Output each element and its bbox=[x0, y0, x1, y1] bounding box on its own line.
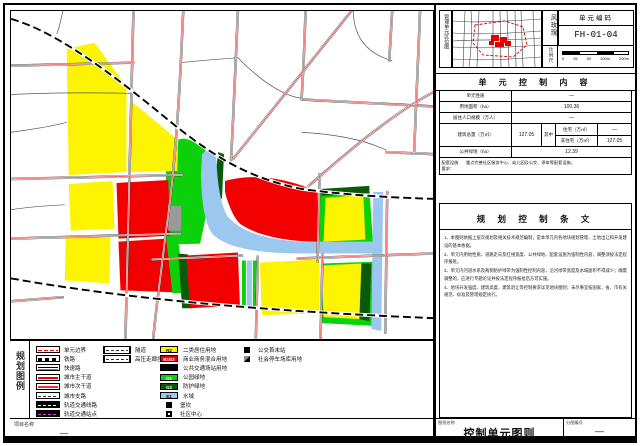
right-panel: 管理单元区位图 风玫瑰 bbox=[434, 5, 635, 442]
legend-item: 城市次干道 bbox=[36, 382, 97, 391]
plan-sheet: 规划图例 单元边界 铁路 快速路 城市主干道 城市次干道 城市支路 轨道交通线路… bbox=[3, 3, 637, 443]
location-inset-map bbox=[452, 10, 542, 68]
legend-item: G1公园绿地 bbox=[160, 373, 227, 382]
provision-item: 2、单元内用地性质、道路走向及红线宽度、公共绿地、配套设施为强制性内容，调整须按… bbox=[444, 251, 627, 266]
drawing-name-cell: 图纸名称 控制单元图则 bbox=[436, 419, 564, 442]
transit-station-swatch bbox=[160, 364, 178, 371]
project-name-strip: 项目名称 — bbox=[10, 418, 434, 442]
legend-item: 堡坎 bbox=[160, 400, 227, 409]
zoning-map bbox=[10, 10, 434, 340]
provisions-title: 规 划 控 制 条 文 bbox=[440, 204, 631, 230]
tunnel-symbol bbox=[103, 346, 131, 354]
bus-terminus-symbol bbox=[244, 347, 250, 353]
location-map-label: 管理单元区位图 bbox=[443, 14, 450, 49]
legend-panel: 规划图例 单元边界 铁路 快速路 城市主干道 城市次干道 城市支路 轨道交通线路… bbox=[10, 340, 434, 418]
drawing-title-strip: 图纸名称 控制单元图则 分图编号 — bbox=[436, 418, 635, 442]
table-row-total: 建筑总量（万㎡） 127.05 其中 住宅（万㎡） — 非住宅（万㎡） 127.… bbox=[440, 123, 631, 146]
sheet-number: — bbox=[564, 426, 635, 436]
location-map-label-strip: 管理单元区位图 bbox=[439, 10, 452, 68]
table-subrow: 住宅（万㎡） — bbox=[556, 124, 631, 135]
arterial-road-symbol bbox=[36, 374, 60, 381]
unit-boundary-symbol bbox=[36, 346, 60, 353]
table-row: 公共绿地（ha） 12.39 bbox=[440, 146, 631, 157]
scale-bar-graphic bbox=[562, 51, 629, 55]
table-row: 单元性质 — bbox=[440, 91, 631, 101]
park-green-swatch: G1 bbox=[160, 374, 178, 381]
legend-item: 城市支路 bbox=[36, 391, 97, 400]
table-remark-row: 配套设施 要求： 重点完善社区服务中心、幼儿园及公交、停车等配套设施。 bbox=[440, 157, 631, 174]
provision-item: 4、地块开发强度、建筑高度、建筑退让等控制要求详见地块图则；未尽事宜按国家、省、… bbox=[444, 284, 627, 299]
table-row: 用地面积（ha） 100.36 bbox=[440, 101, 631, 112]
legend-item: 轨道交通线路 bbox=[36, 400, 97, 409]
metro-line-symbol bbox=[36, 401, 60, 408]
legend-item: R2二类居住用地 bbox=[160, 345, 227, 354]
metro-station-symbol bbox=[36, 410, 60, 417]
unit-code-label: 单元编码 bbox=[559, 11, 633, 26]
scale-bar-ticks: 0 25 50 100m 200m bbox=[562, 56, 629, 61]
community-center-symbol bbox=[166, 411, 172, 417]
wind-rose-strip: 风玫瑰 bbox=[542, 10, 558, 46]
legend-item: 社会停车场库用地 bbox=[238, 354, 302, 363]
legend-item: 公交首末站 bbox=[238, 345, 302, 354]
project-name-label: 项目名称 bbox=[14, 421, 34, 428]
legend-column-facilities: 公交首末站 社会停车场库用地 bbox=[238, 345, 302, 363]
scale-label: 比例尺 bbox=[548, 47, 554, 64]
scale-bar: 0 25 50 100m 200m bbox=[558, 46, 634, 68]
water-swatch: E1 bbox=[160, 392, 178, 399]
legend-item: G2防护绿地 bbox=[160, 382, 227, 391]
protective-green-swatch: G2 bbox=[160, 383, 178, 390]
legend-title: 规划图例 bbox=[14, 351, 27, 391]
provisions-text: 1、本图则依据上层次规划及相关技术规范编制，是本单元内各地块规划管理、土地出让和… bbox=[440, 230, 631, 304]
drawing-name: 控制单元图则 bbox=[436, 425, 563, 441]
legend-item: 单元边界 bbox=[36, 345, 97, 354]
wind-rose-label: 风玫瑰 bbox=[547, 14, 557, 37]
legend-column-landuse: R2二类居住用地 B1B2商业商务混合用地 公共交通场站用地 G1公园绿地 G2… bbox=[160, 345, 227, 419]
unit-code-box: 单元编码 FH-01-04 bbox=[558, 10, 634, 46]
retaining-wall-symbol bbox=[166, 402, 172, 408]
inset-map-svg bbox=[453, 11, 541, 67]
sheet-number-cell: 分图编号 — bbox=[564, 419, 635, 442]
legend-item: E1水域 bbox=[160, 391, 227, 400]
railway-symbol bbox=[36, 355, 60, 362]
provisions-panel: 规 划 控 制 条 文 1、本图则依据上层次规划及相关技术规范编制，是本单元内各… bbox=[439, 203, 632, 418]
public-parking-symbol bbox=[244, 356, 250, 362]
legend-item: 公共交通场站用地 bbox=[160, 363, 227, 372]
control-table: 单元性质 — 用地面积（ha） 100.36 居住人口规模（万人） — 建筑总量… bbox=[439, 91, 632, 175]
zoning-map-svg bbox=[11, 11, 433, 339]
unit-code-value: FH-01-04 bbox=[559, 26, 633, 45]
power-corridor-symbol bbox=[103, 355, 131, 363]
table-subrow: 非住宅（万㎡） 127.05 bbox=[556, 135, 631, 146]
branch-road-symbol bbox=[36, 392, 60, 399]
legend-item: B1B2商业商务混合用地 bbox=[160, 354, 227, 363]
provision-item: 3、单元内河道水系及两侧防护绿带为强制性控制内容，沿河绿带宽度及水域面积不得减少… bbox=[444, 267, 627, 282]
legend-title-strip: 规划图例 bbox=[10, 341, 30, 419]
legend-item: 铁路 bbox=[36, 354, 97, 363]
expressway-symbol bbox=[36, 364, 60, 371]
provision-item: 1、本图则依据上层次规划及相关技术规范编制，是本单元内各地块规划管理、土地出让和… bbox=[444, 234, 627, 249]
building-footprint bbox=[168, 206, 181, 231]
commercial-swatch: B1B2 bbox=[160, 355, 178, 362]
project-name-value: — bbox=[60, 429, 68, 438]
legend-column-lines: 单元边界 铁路 快速路 城市主干道 城市次干道 城市支路 轨道交通线路 轨道交通… bbox=[36, 345, 97, 419]
table-row: 居住人口规模（万人） — bbox=[440, 112, 631, 123]
control-table-title: 单 元 控 制 内 容 bbox=[436, 73, 635, 91]
legend-item: 城市主干道 bbox=[36, 373, 97, 382]
scale-label-strip: 比例尺 bbox=[542, 46, 558, 68]
secondary-road-symbol bbox=[36, 383, 60, 390]
legend-item: 快速路 bbox=[36, 363, 97, 372]
residential-swatch: R2 bbox=[160, 346, 178, 353]
